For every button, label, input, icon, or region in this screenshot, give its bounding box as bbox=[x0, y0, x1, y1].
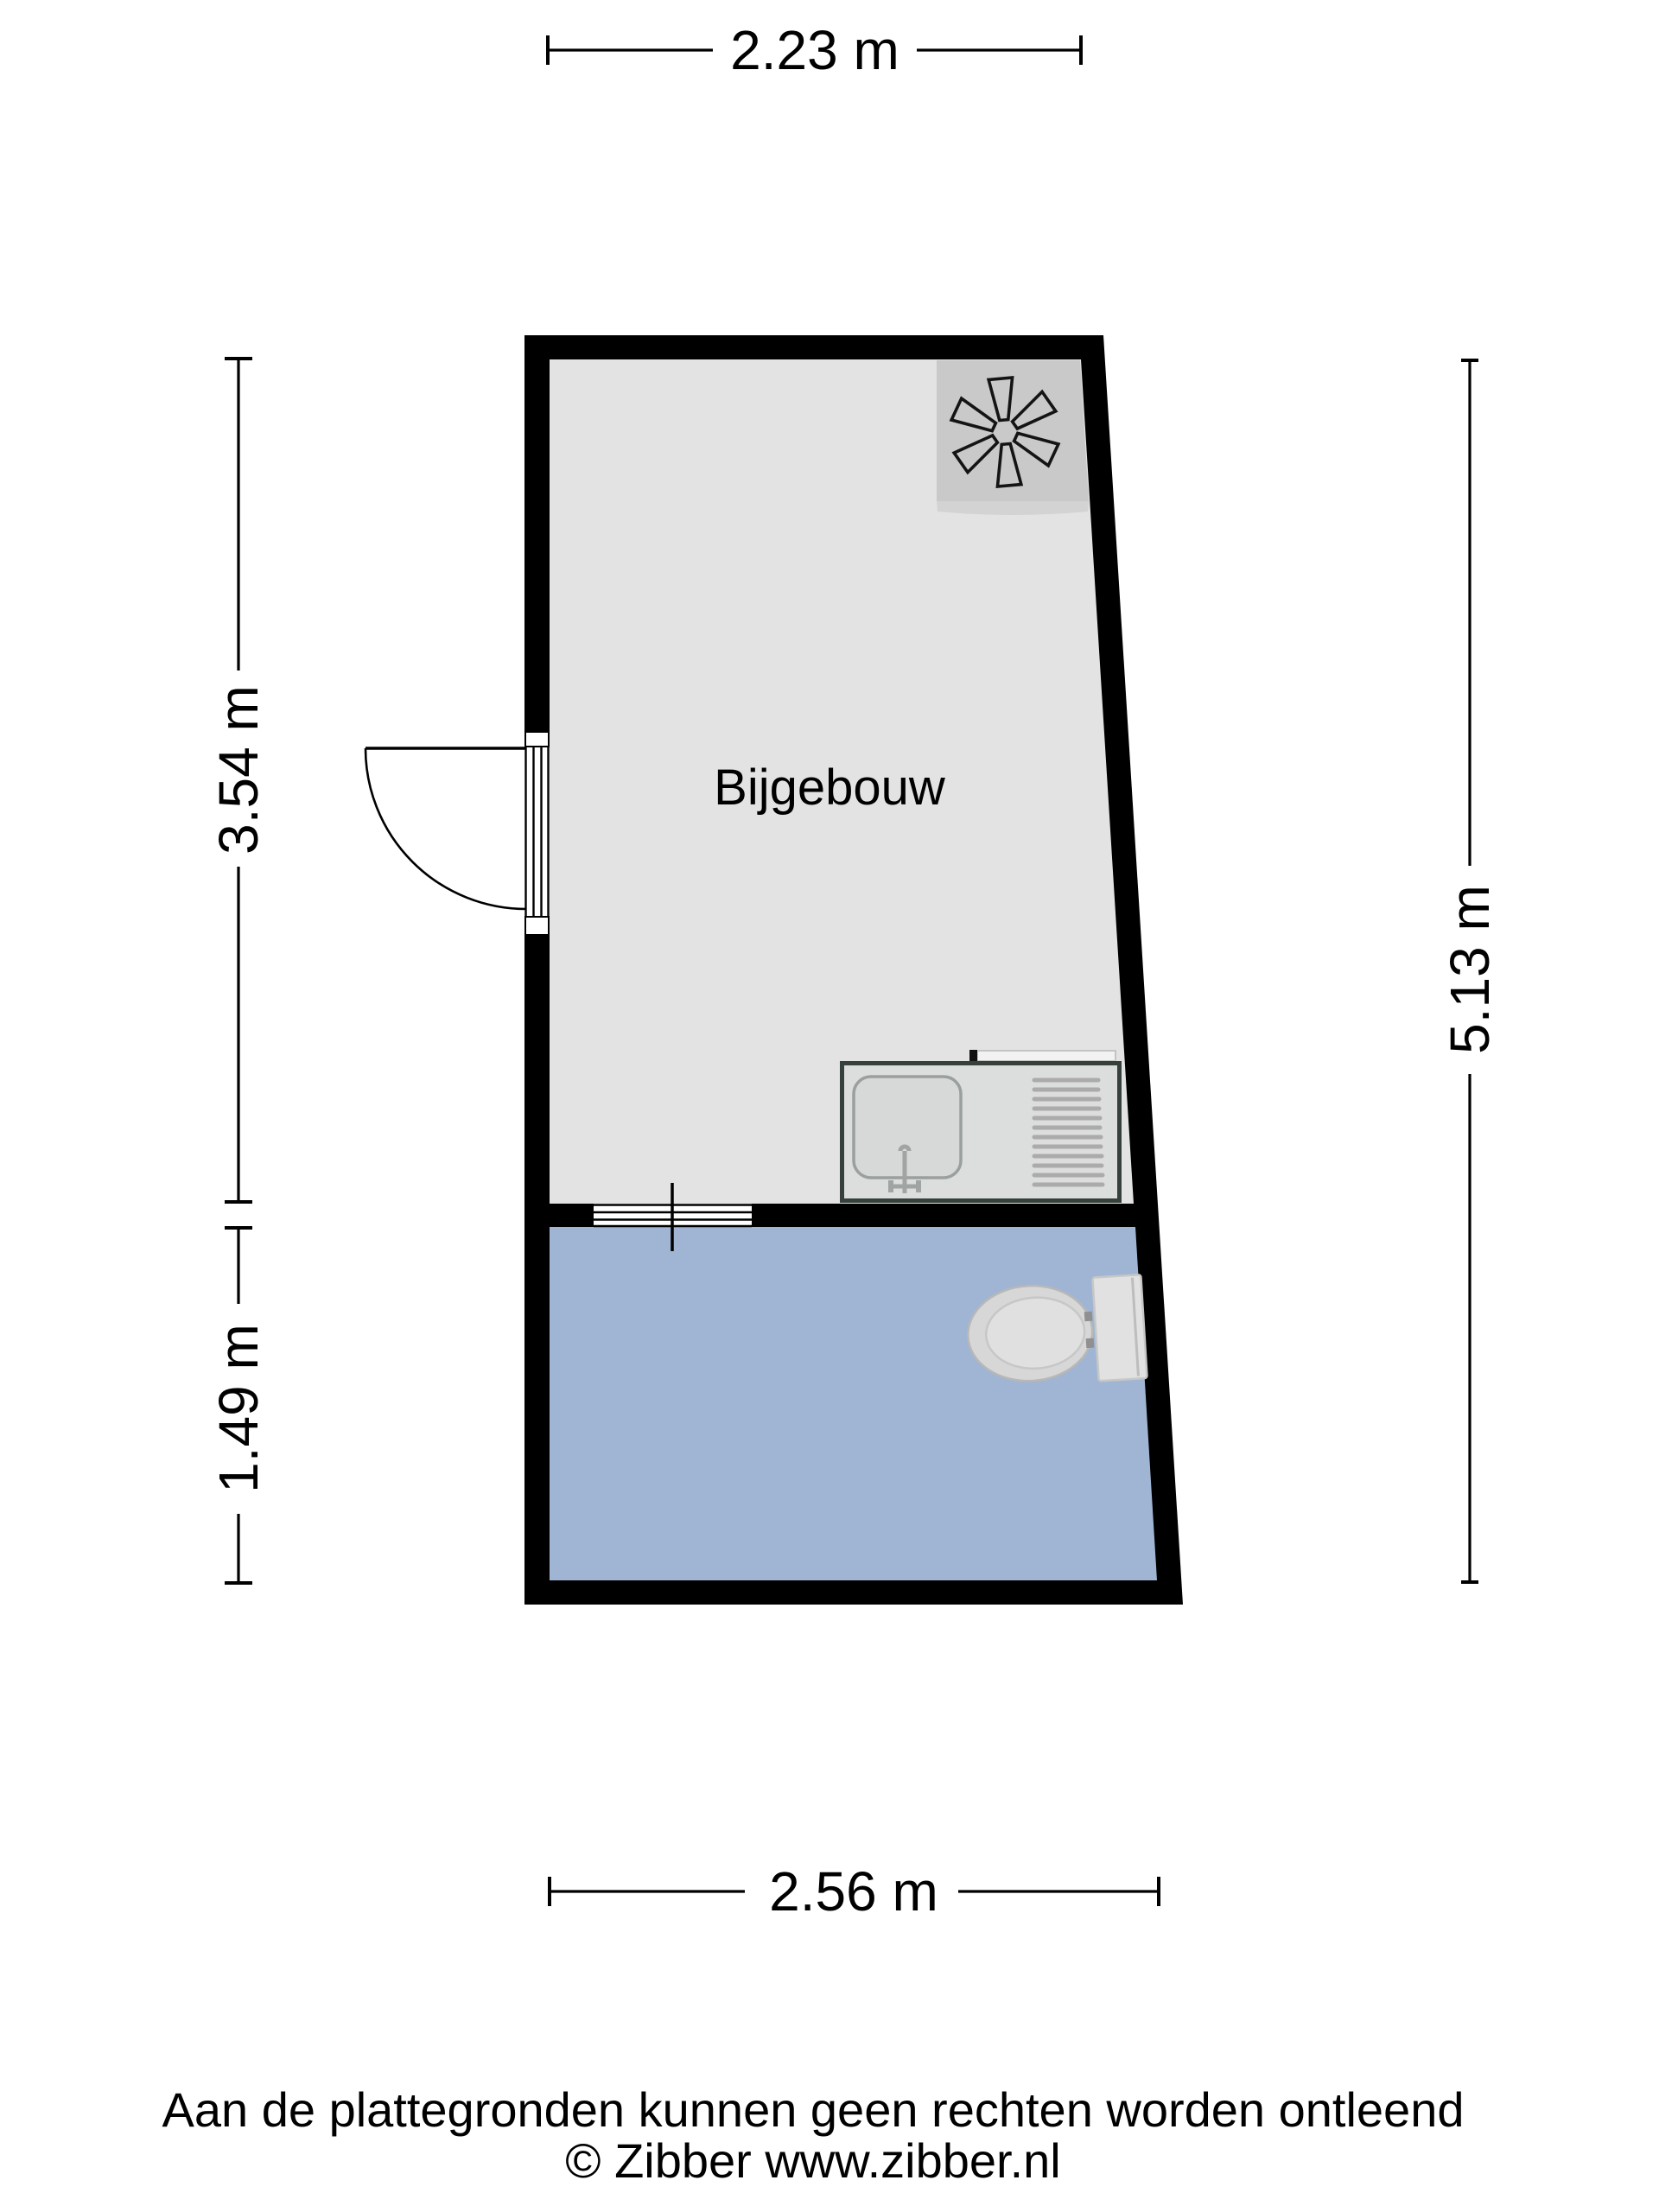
svg-text:2.23 m: 2.23 m bbox=[730, 19, 899, 81]
svg-text:Aan de plattegronden kunnen ge: Aan de plattegronden kunnen geen rechten… bbox=[162, 2082, 1465, 2137]
svg-text:Bijgebouw: Bijgebouw bbox=[714, 760, 946, 816]
svg-text:2.56 m: 2.56 m bbox=[769, 1860, 938, 1923]
svg-text:© Zibber www.zibber.nl: © Zibber www.zibber.nl bbox=[565, 2133, 1060, 2188]
svg-text:1.49 m: 1.49 m bbox=[207, 1324, 270, 1493]
svg-text:3.54 m: 3.54 m bbox=[207, 685, 270, 855]
svg-text:5.13 m: 5.13 m bbox=[1439, 885, 1501, 1054]
